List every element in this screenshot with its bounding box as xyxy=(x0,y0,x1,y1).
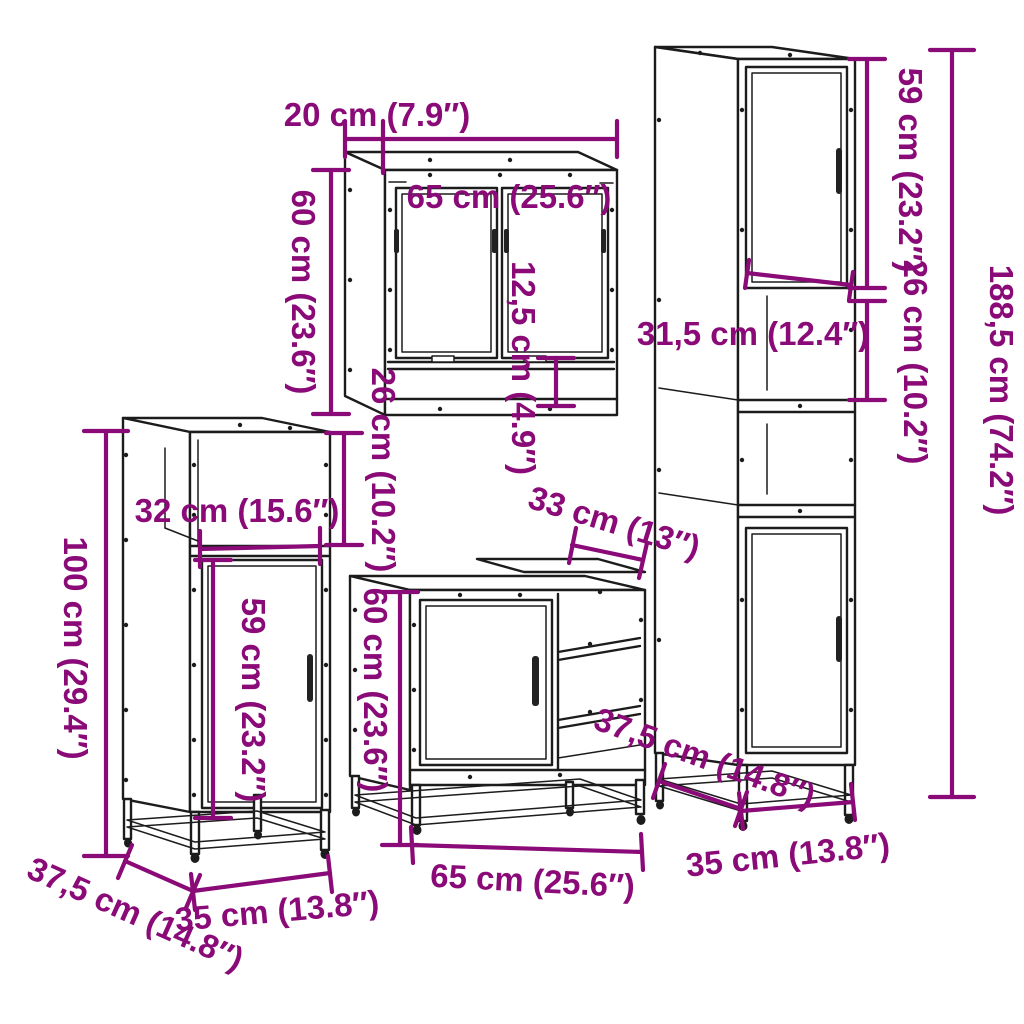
door-handle-icon xyxy=(504,229,509,253)
label-side-door-height: 59 cm (23.2″) xyxy=(235,598,272,803)
door-handle-icon xyxy=(532,656,539,706)
label-mirror-shelf-height: 12,5 cm (4.9″) xyxy=(505,261,542,475)
dimension-diagram: 20 cm (7.9″) 65 cm (25.6″) 60 cm (23.6″)… xyxy=(0,0,1024,1024)
furniture-dimension-drawing: 20 cm (7.9″) 65 cm (25.6″) 60 cm (23.6″)… xyxy=(0,0,1024,1024)
door-handle-icon xyxy=(307,654,313,702)
cabinet-leg xyxy=(321,810,329,850)
label-tall-compartment-height: 26 cm (10.2″) xyxy=(897,260,934,465)
tall-cabinet-drawing xyxy=(655,47,855,831)
tall-cabinet-upper-door xyxy=(746,67,847,288)
label-tall-door-height: 59 cm (23.2″) xyxy=(892,68,929,273)
label-mirror-width: 65 cm (25.6″) xyxy=(407,178,612,215)
label-sink-height: 60 cm (23.6″) xyxy=(357,588,394,793)
cabinet-leg xyxy=(636,780,644,814)
door-handle-icon xyxy=(394,229,399,253)
door-handle-icon xyxy=(492,229,497,253)
furniture-line-art xyxy=(123,47,855,863)
label-sink-width: 65 cm (25.6″) xyxy=(429,857,635,905)
side-cabinet-drawing xyxy=(123,418,330,863)
door-handle-icon xyxy=(836,148,842,194)
label-tall-width: 35 cm (13.8″) xyxy=(684,825,892,883)
label-side-shelf-width: 32 cm (15.6″) xyxy=(135,492,340,529)
dim-line-tall-height xyxy=(930,50,974,797)
tall-cabinet-lower-door xyxy=(746,528,847,753)
label-side-height: 100 cm (29.4″) xyxy=(57,536,94,759)
label-mirror-depth: 20 cm (7.9″) xyxy=(284,96,470,133)
door-handle-icon xyxy=(601,229,606,253)
label-mirror-height: 60 cm (23.6″) xyxy=(285,190,322,395)
label-side-compartment-height: 26 cm (10.2″) xyxy=(365,368,402,573)
label-tall-inner-width: 31,5 cm (12.4″) xyxy=(637,315,869,352)
door-handle-icon xyxy=(836,616,842,662)
label-tall-height: 188,5 cm (74.2″) xyxy=(983,265,1020,516)
cabinet-leg xyxy=(124,799,131,839)
